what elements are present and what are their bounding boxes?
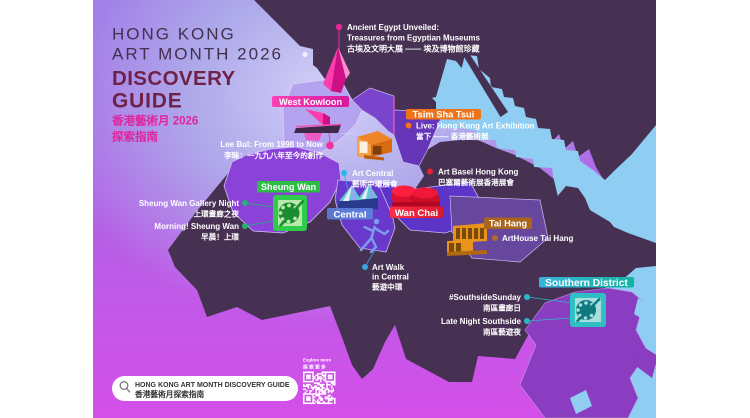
svg-text:Late Night Southside: Late Night Southside [441, 317, 522, 326]
svg-text:Sheung Wan: Sheung Wan [261, 182, 317, 192]
svg-text:Lee Bul: From 1998 to Now: Lee Bul: From 1998 to Now [220, 140, 323, 149]
svg-text:李昧：一九九八年至今的創作: 李昧：一九九八年至今的創作 [223, 150, 323, 160]
svg-text:上環畫廊之夜: 上環畫廊之夜 [193, 209, 239, 219]
svg-text:ART MONTH 2026: ART MONTH 2026 [112, 45, 283, 64]
svg-text:Tai Hang: Tai Hang [489, 219, 527, 229]
svg-text:HONG KONG ART MONTH DISCOVERY: HONG KONG ART MONTH DISCOVERY GUIDE [135, 382, 290, 389]
svg-text:#SouthsideSunday: #SouthsideSunday [449, 293, 522, 302]
svg-text:藝遊中環: 藝遊中環 [372, 282, 403, 292]
svg-text:古埃及文明大展 —— 埃及博物館珍藏: 古埃及文明大展 —— 埃及博物館珍藏 [347, 44, 479, 54]
svg-text:探索更多: 探索更多 [303, 364, 327, 371]
svg-text:Art Walk: Art Walk [372, 263, 405, 272]
svg-text:Art Basel Hong Kong: Art Basel Hong Kong [438, 168, 519, 177]
svg-text:Central: Central [333, 209, 366, 220]
svg-text:Explore more: Explore more [303, 358, 332, 363]
svg-text:DISCOVERY: DISCOVERY [112, 67, 236, 90]
svg-text:南區藝遊夜: 南區藝遊夜 [483, 327, 521, 337]
svg-text:當下 —— 香港藝術展: 當下 —— 香港藝術展 [416, 131, 489, 141]
svg-text:Wan Chai: Wan Chai [395, 208, 438, 219]
svg-text:HONG KONG: HONG KONG [112, 25, 236, 44]
svg-text:ArtHouse Tai Hang: ArtHouse Tai Hang [502, 234, 574, 243]
svg-text:探索指南: 探索指南 [112, 130, 158, 144]
svg-text:Live: Hong Kong Art Exhibition: Live: Hong Kong Art Exhibition [416, 122, 534, 131]
svg-text:GUIDE: GUIDE [112, 90, 183, 113]
svg-text:Morning! Sheung Wan: Morning! Sheung Wan [154, 222, 239, 231]
svg-text:Southern District: Southern District [545, 278, 628, 289]
svg-text:香港藝術月 2026: 香港藝術月 2026 [111, 114, 198, 128]
svg-text:早晨！上環: 早晨！上環 [201, 232, 239, 242]
svg-text:West Kowloon: West Kowloon [279, 97, 343, 107]
svg-text:巴塞爾藝術展香港展會: 巴塞爾藝術展香港展會 [438, 177, 514, 187]
svg-text:Treasures from Egyptian Museum: Treasures from Egyptian Museums [347, 34, 480, 43]
svg-text:in Central: in Central [372, 273, 409, 282]
svg-text:Ancient Egypt Unveiled:: Ancient Egypt Unveiled: [347, 23, 439, 32]
svg-text:Sheung Wan Gallery Night: Sheung Wan Gallery Night [139, 199, 239, 208]
svg-text:Tsim Sha Tsui: Tsim Sha Tsui [413, 110, 475, 120]
svg-text:Art Central: Art Central [352, 169, 393, 178]
svg-text:香港藝術月探索指南: 香港藝術月探索指南 [134, 389, 205, 399]
svg-text:南區畫廊日: 南區畫廊日 [483, 303, 521, 313]
svg-text:藝術中環展會: 藝術中環展會 [352, 179, 398, 189]
